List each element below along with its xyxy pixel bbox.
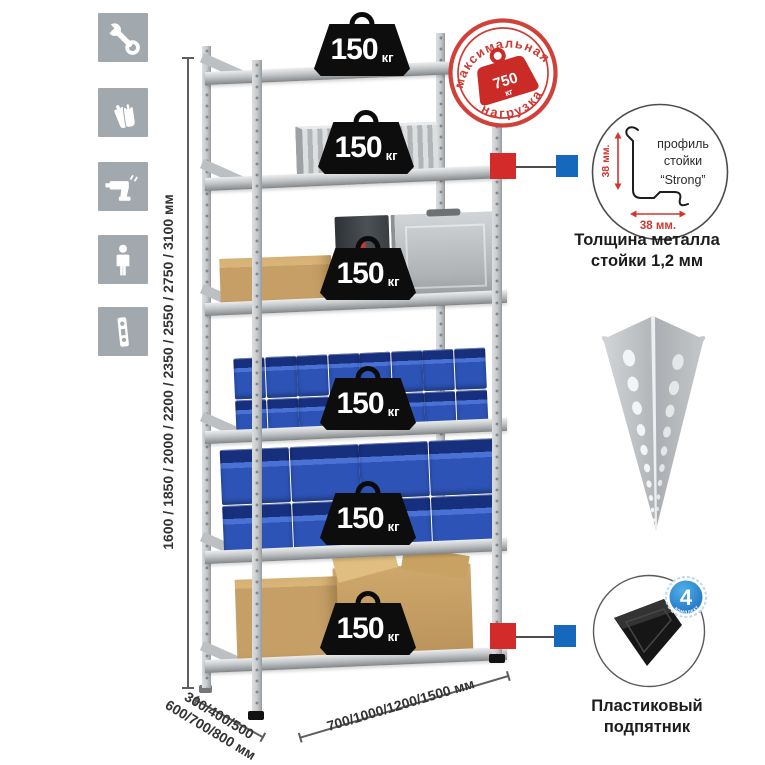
profile-vertical-dim-label: 38 мм. [600,144,612,177]
foot-caption: Пластиковый подпятник [552,696,742,739]
width-dimension-label: 700/1000/1200/1500 мм [300,668,501,742]
person-icon [98,235,148,284]
profile-title-1: профиль [657,137,709,151]
front-right-plastic-foot [489,654,505,663]
perforated-strip-icon [98,307,148,356]
post-profile-detail: 38 мм. 38 мм. профиль стойки “Strong” [590,102,730,242]
depth-dimension-label: 300/400/500 600/700/800 мм [142,670,288,765]
profile-marker-blue [556,155,578,177]
foot-leader-line [514,636,556,638]
foot-marker-red [490,623,516,649]
height-dimension-label: 1600 / 1850 / 2000 / 2200 / 2350 / 2550 … [160,52,176,692]
rack-post-rear-left [202,46,211,688]
profile-title-2: стойки [664,154,702,168]
max-load-stamp: максимальная нагрузка 750 кг [429,0,576,147]
profile-marker-red [490,153,516,179]
profile-caption: Толщина металла стойки 1,2 мм [552,230,742,273]
infographic-canvas: 1600 / 1850 / 2000 / 2200 / 2350 / 2550 … [0,0,765,765]
front-left-plastic-foot [248,711,264,720]
gloves-icon [98,88,148,137]
plastic-foot-detail: 4 в комплекте [592,572,714,690]
profile-title-3: “Strong” [660,173,705,187]
foot-marker-blue [554,625,576,647]
profile-leader-line [514,166,558,168]
rack-post-front-left [252,60,262,714]
angle-post-image [596,308,711,538]
quantity-badge: 4 в комплекте [666,577,706,617]
drill-icon [98,162,148,211]
height-dimension-line [187,57,189,689]
wrench-icon [98,13,148,62]
quantity-badge-value: 4 [680,585,693,610]
